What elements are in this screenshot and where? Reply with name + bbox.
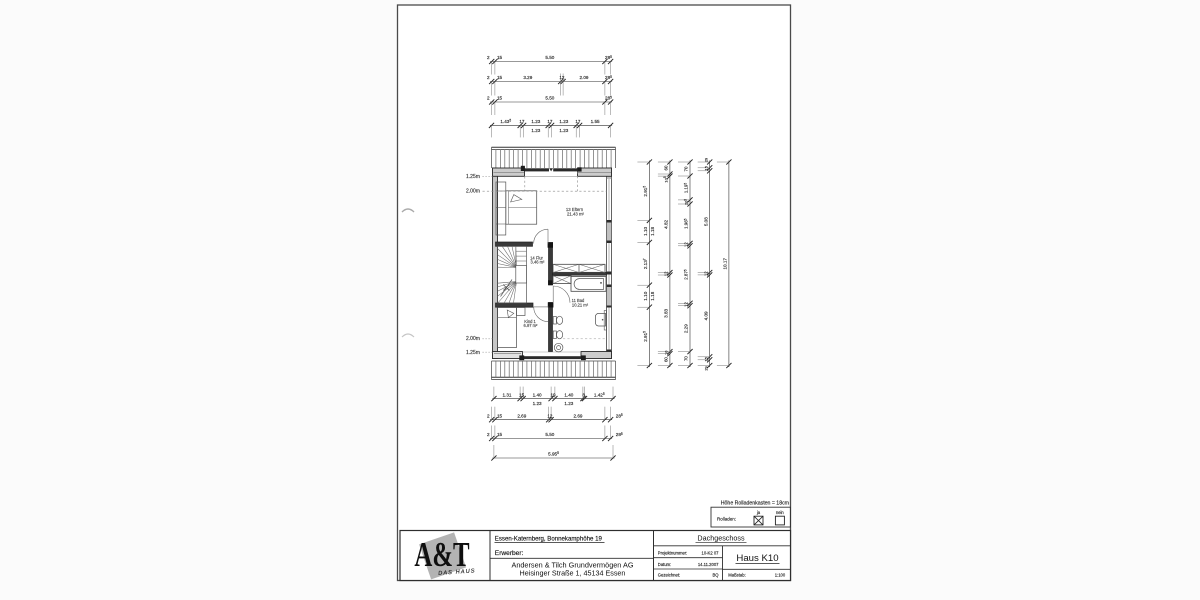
svg-text:15: 15 <box>519 392 525 397</box>
svg-text:ja: ja <box>756 510 761 515</box>
svg-text:15: 15 <box>703 166 708 170</box>
svg-text:1.23: 1.23 <box>533 401 542 406</box>
svg-text:3.46 m²: 3.46 m² <box>531 260 546 265</box>
svg-text:1.31: 1.31 <box>503 392 512 397</box>
svg-text:12: 12 <box>684 242 689 247</box>
svg-text:60: 60 <box>664 165 669 170</box>
svg-text:12: 12 <box>547 413 553 418</box>
svg-text:5.50: 5.50 <box>545 432 554 437</box>
svg-text:5.50: 5.50 <box>545 55 554 60</box>
svg-text:6.97 m²: 6.97 m² <box>524 323 539 328</box>
svg-text:1.40: 1.40 <box>564 392 573 397</box>
svg-text:5.50: 5.50 <box>545 96 554 101</box>
svg-text:29: 29 <box>703 158 708 162</box>
svg-text:15: 15 <box>497 413 503 418</box>
svg-text:Höhe Rolladenkasten = 18cm: Höhe Rolladenkasten = 18cm <box>721 500 789 506</box>
svg-text:2: 2 <box>487 413 490 418</box>
svg-text:Dachgeschoss: Dachgeschoss <box>697 534 745 543</box>
svg-text:1.18: 1.18 <box>650 226 655 235</box>
svg-text:5.08: 5.08 <box>703 217 708 226</box>
svg-text:8: 8 <box>582 392 585 397</box>
svg-text:1.25m: 1.25m <box>466 174 480 180</box>
svg-text:14.11.2007: 14.11.2007 <box>698 562 719 567</box>
svg-text:21.43 m²: 21.43 m² <box>567 212 585 217</box>
svg-text:Rolladen:: Rolladen: <box>717 516 736 521</box>
svg-text:70: 70 <box>684 356 689 361</box>
svg-text:17: 17 <box>519 119 525 124</box>
svg-text:4.09: 4.09 <box>703 311 708 320</box>
svg-text:70: 70 <box>684 166 689 171</box>
svg-text:12: 12 <box>559 75 565 80</box>
svg-text:2.69: 2.69 <box>517 413 526 418</box>
svg-text:4.82: 4.82 <box>664 219 669 228</box>
svg-text:2.09: 2.09 <box>580 75 589 80</box>
svg-text:1.23: 1.23 <box>564 401 573 406</box>
svg-text:1.23: 1.23 <box>531 128 540 133</box>
svg-text:12: 12 <box>664 271 669 276</box>
svg-text:15: 15 <box>703 357 708 361</box>
svg-text:nein: nein <box>776 510 785 515</box>
svg-text:15: 15 <box>497 55 503 60</box>
svg-text:1.23: 1.23 <box>531 119 540 124</box>
svg-text:1.23: 1.23 <box>559 119 568 124</box>
svg-text:15: 15 <box>497 432 503 437</box>
svg-text:1.25m: 1.25m <box>466 350 480 356</box>
svg-text:1:100: 1:100 <box>775 573 786 578</box>
svg-text:1.10: 1.10 <box>643 291 648 300</box>
svg-text:10-K2 07: 10-K2 07 <box>702 551 720 556</box>
svg-text:Gezeichnet:: Gezeichnet: <box>658 573 680 578</box>
svg-text:12: 12 <box>703 271 708 276</box>
svg-text:1.23: 1.23 <box>559 128 568 133</box>
svg-text:2: 2 <box>487 55 490 60</box>
svg-text:17: 17 <box>575 119 581 124</box>
svg-text:2.00m: 2.00m <box>466 336 480 342</box>
svg-text:1.55: 1.55 <box>591 119 600 124</box>
svg-text:Haus K10: Haus K10 <box>736 553 778 564</box>
svg-text:10.21 m²: 10.21 m² <box>572 303 589 308</box>
svg-text:1.10: 1.10 <box>643 226 648 235</box>
svg-text:10.17: 10.17 <box>723 258 728 270</box>
svg-text:Essen-Katernberg, Bonnekamphöh: Essen-Katernberg, Bonnekamphöhe 19 <box>495 536 603 543</box>
svg-text:29: 29 <box>703 366 708 370</box>
svg-text:19: 19 <box>550 392 556 397</box>
svg-text:2: 2 <box>487 75 490 80</box>
svg-text:3.83: 3.83 <box>664 308 669 317</box>
svg-text:Projektnummer:: Projektnummer: <box>658 551 688 556</box>
svg-text:3.29: 3.29 <box>523 75 532 80</box>
svg-text:15: 15 <box>497 96 503 101</box>
svg-text:60: 60 <box>664 357 669 362</box>
svg-text:Erwerber:: Erwerber: <box>495 550 524 557</box>
svg-text:Heisinger Straße 1, 45134 Esse: Heisinger Straße 1, 45134 Essen <box>520 568 626 577</box>
svg-text:12: 12 <box>684 302 689 307</box>
svg-text:Maßstab:: Maßstab: <box>728 573 745 578</box>
svg-text:15: 15 <box>497 75 503 80</box>
svg-text:2.29: 2.29 <box>684 324 689 333</box>
svg-text:2.69: 2.69 <box>574 413 583 418</box>
svg-text:1.18: 1.18 <box>650 291 655 300</box>
svg-text:17: 17 <box>547 119 553 124</box>
svg-text:2: 2 <box>487 96 490 101</box>
svg-text:A&T: A&T <box>414 535 469 574</box>
svg-text:2.00m: 2.00m <box>466 189 480 195</box>
svg-text:BQ: BQ <box>712 573 719 578</box>
svg-text:2: 2 <box>487 432 490 437</box>
svg-text:Datum:: Datum: <box>658 562 672 567</box>
svg-text:1.40: 1.40 <box>533 392 542 397</box>
